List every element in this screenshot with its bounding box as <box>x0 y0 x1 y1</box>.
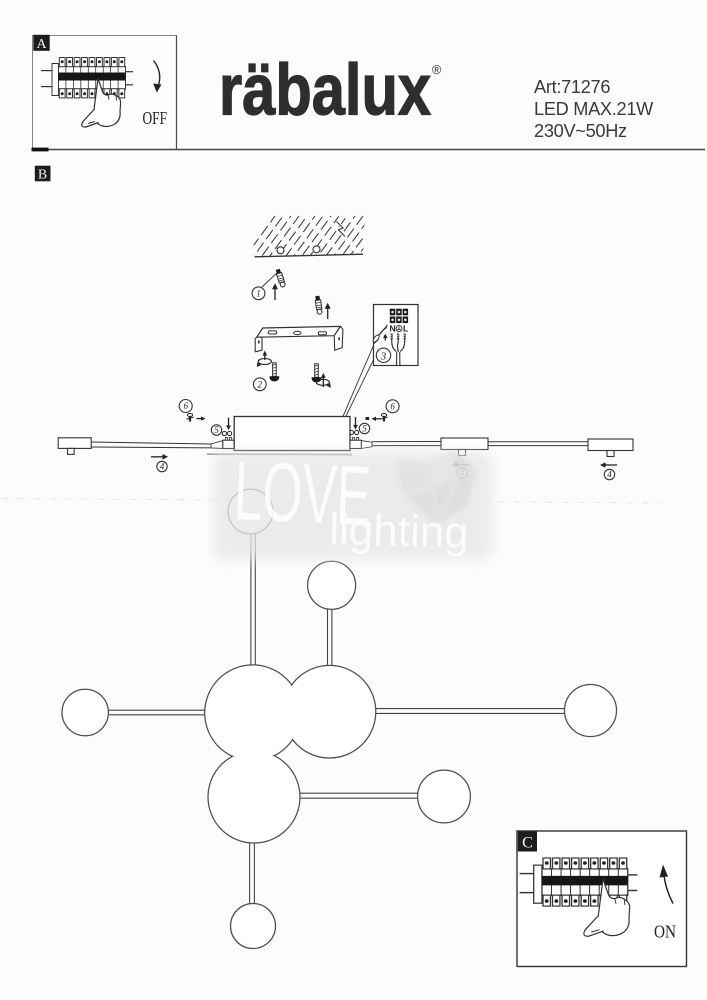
svg-text:OFF: OFF <box>143 108 168 128</box>
svg-text:4: 4 <box>607 470 612 480</box>
svg-text:2: 2 <box>258 380 263 390</box>
svg-text:ON: ON <box>654 922 676 942</box>
svg-text:A: A <box>36 37 47 52</box>
svg-text:5: 5 <box>362 424 367 434</box>
svg-text:L: L <box>403 324 408 334</box>
svg-text:3: 3 <box>380 350 387 362</box>
svg-text:Art:71276: Art:71276 <box>534 77 610 97</box>
svg-text:B: B <box>38 167 47 182</box>
svg-text:4: 4 <box>160 462 165 472</box>
svg-text:6: 6 <box>390 402 395 412</box>
svg-text:5: 5 <box>214 425 219 435</box>
svg-text:230V~50Hz: 230V~50Hz <box>534 121 627 141</box>
svg-text:®: ® <box>432 63 442 77</box>
svg-text:N: N <box>390 324 396 334</box>
svg-text:1: 1 <box>256 289 261 299</box>
svg-text:C: C <box>522 835 533 852</box>
svg-text:LED MAX.21W: LED MAX.21W <box>534 99 654 119</box>
svg-text:lighting: lighting <box>329 505 470 558</box>
svg-text:räbalux: räbalux <box>219 49 431 130</box>
svg-text:6: 6 <box>183 401 188 411</box>
